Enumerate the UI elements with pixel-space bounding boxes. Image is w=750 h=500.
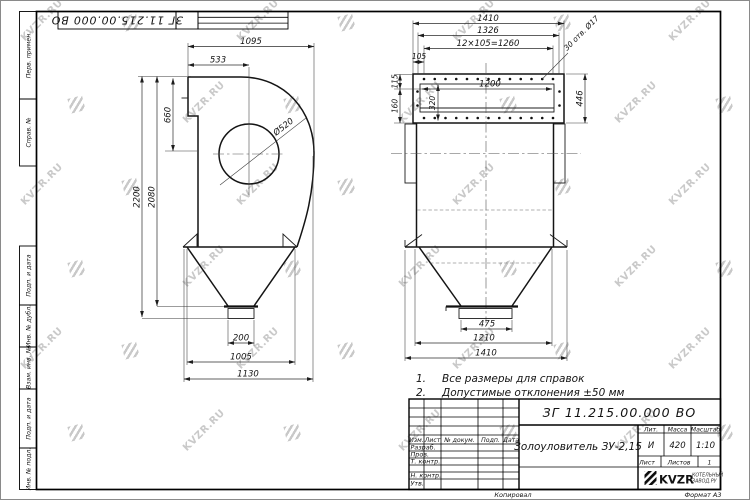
dim-475: 475 <box>479 320 495 330</box>
holes-callout: 30 отв. Ø17 <box>562 14 601 53</box>
dim-12x105: 12×105=1260 <box>457 39 520 49</box>
row-utv: Утв. <box>411 480 424 488</box>
right-view <box>391 63 581 323</box>
margin-columns: Перв. примен. Справ. № Подп. и дата Инв.… <box>20 12 37 491</box>
drawing-canvas: Перв. примен. Справ. № Подп. и дата Инв.… <box>1 1 750 500</box>
dim-533: 533 <box>210 56 226 66</box>
margin-label-inv-no-podl: Инв. № подл. <box>26 448 33 491</box>
margin-label-podp-i-data-1: Подп. и дата <box>26 254 33 296</box>
dim-1326: 1326 <box>477 26 499 36</box>
masshtab-value: 1:10 <box>696 441 715 451</box>
dim-1410-top: 1410 <box>477 14 499 24</box>
listov-value: 1 <box>708 459 712 466</box>
dim-1130: 1130 <box>237 370 259 380</box>
margin-label-inv-no-dubl: Инв. № дубл. <box>25 305 33 347</box>
note-1-text: Все размеры для справок <box>442 373 585 385</box>
dim-105: 105 <box>412 52 427 61</box>
massa-value: 420 <box>669 441 685 451</box>
title-block: Изм. Лист № докум. Подп. Дата Разраб. Пр… <box>409 399 724 499</box>
dim-115: 115 <box>391 74 400 89</box>
note-2-text: Допустимые отклонения ±50 мм <box>441 387 625 399</box>
logo-mark-icon <box>645 471 657 485</box>
dim-160: 160 <box>391 99 400 114</box>
format-label: Формат А3 <box>684 491 721 499</box>
dim-1005: 1005 <box>230 353 252 363</box>
logo-text: KVZR <box>659 473 694 487</box>
blueprint-sheet: KVZR.RUKVZR.RUKVZR.RUKVZR.RUKVZR.RUKVZR.… <box>0 0 750 500</box>
kopiroval-label: Копировал <box>494 491 531 499</box>
margin-label-vzam-inv-no: Взам. инв. № <box>26 347 33 389</box>
listov-label: Листов <box>666 459 690 466</box>
lit-header: Лит. <box>643 427 658 434</box>
dim-1210: 1210 <box>473 334 495 344</box>
col-podp: Подп. <box>481 437 500 444</box>
top-stamp-doc-number: ЗГ 11.215.00.000 ВО <box>51 14 183 27</box>
lit-value: И <box>648 441 655 451</box>
margin-label-podp-i-data-2: Подп. и дата <box>26 397 33 439</box>
dim-1410-bottom: 1410 <box>475 349 497 359</box>
masshtab-header: Масштаб <box>691 426 721 434</box>
dim-1095: 1095 <box>240 37 262 47</box>
doc-number: ЗГ 11.215.00.000 ВО <box>543 405 697 420</box>
massa-header: Масса <box>668 427 688 434</box>
left-view: Ø520 <box>182 67 315 319</box>
dim-1200: 1200 <box>479 80 501 90</box>
dim-320: 320 <box>428 96 437 111</box>
notes: 1. Все размеры для справок 2. Допустимые… <box>416 373 625 399</box>
dim-660: 660 <box>164 107 174 123</box>
note-1-number: 1. <box>416 373 426 385</box>
dim-200: 200 <box>233 334 249 344</box>
dim-2080: 2080 <box>148 186 158 208</box>
dim-446: 446 <box>576 90 586 107</box>
top-stamp: ЗГ 11.215.00.000 ВО <box>51 12 288 30</box>
row-n-kontr: Н. контр. <box>411 472 442 480</box>
col-n-dokum: № докум. <box>443 437 475 444</box>
margin-label-sprav-no: Справ. № <box>26 117 33 147</box>
dim-2200: 2200 <box>133 186 143 208</box>
company-logo: KVZR КОТЕЛЬНЫЙ ЗАВОД.РУ <box>645 471 724 487</box>
product-name: Золоуловитель ЗУ-2,15 <box>514 441 642 453</box>
left-view-dimensions: 1095 533 660 2200 2080 200 1005 1130 <box>133 37 315 382</box>
list-label: Лист <box>638 459 655 466</box>
logo-sub-line2: ЗАВОД.РУ <box>692 479 718 485</box>
logo-sub-line1: КОТЕЛЬНЫЙ <box>692 472 724 479</box>
margin-label-perv-primen: Перв. примен. <box>26 32 33 78</box>
row-t-kontr: Т. контр. <box>411 458 441 466</box>
note-2-number: 2. <box>416 387 426 399</box>
